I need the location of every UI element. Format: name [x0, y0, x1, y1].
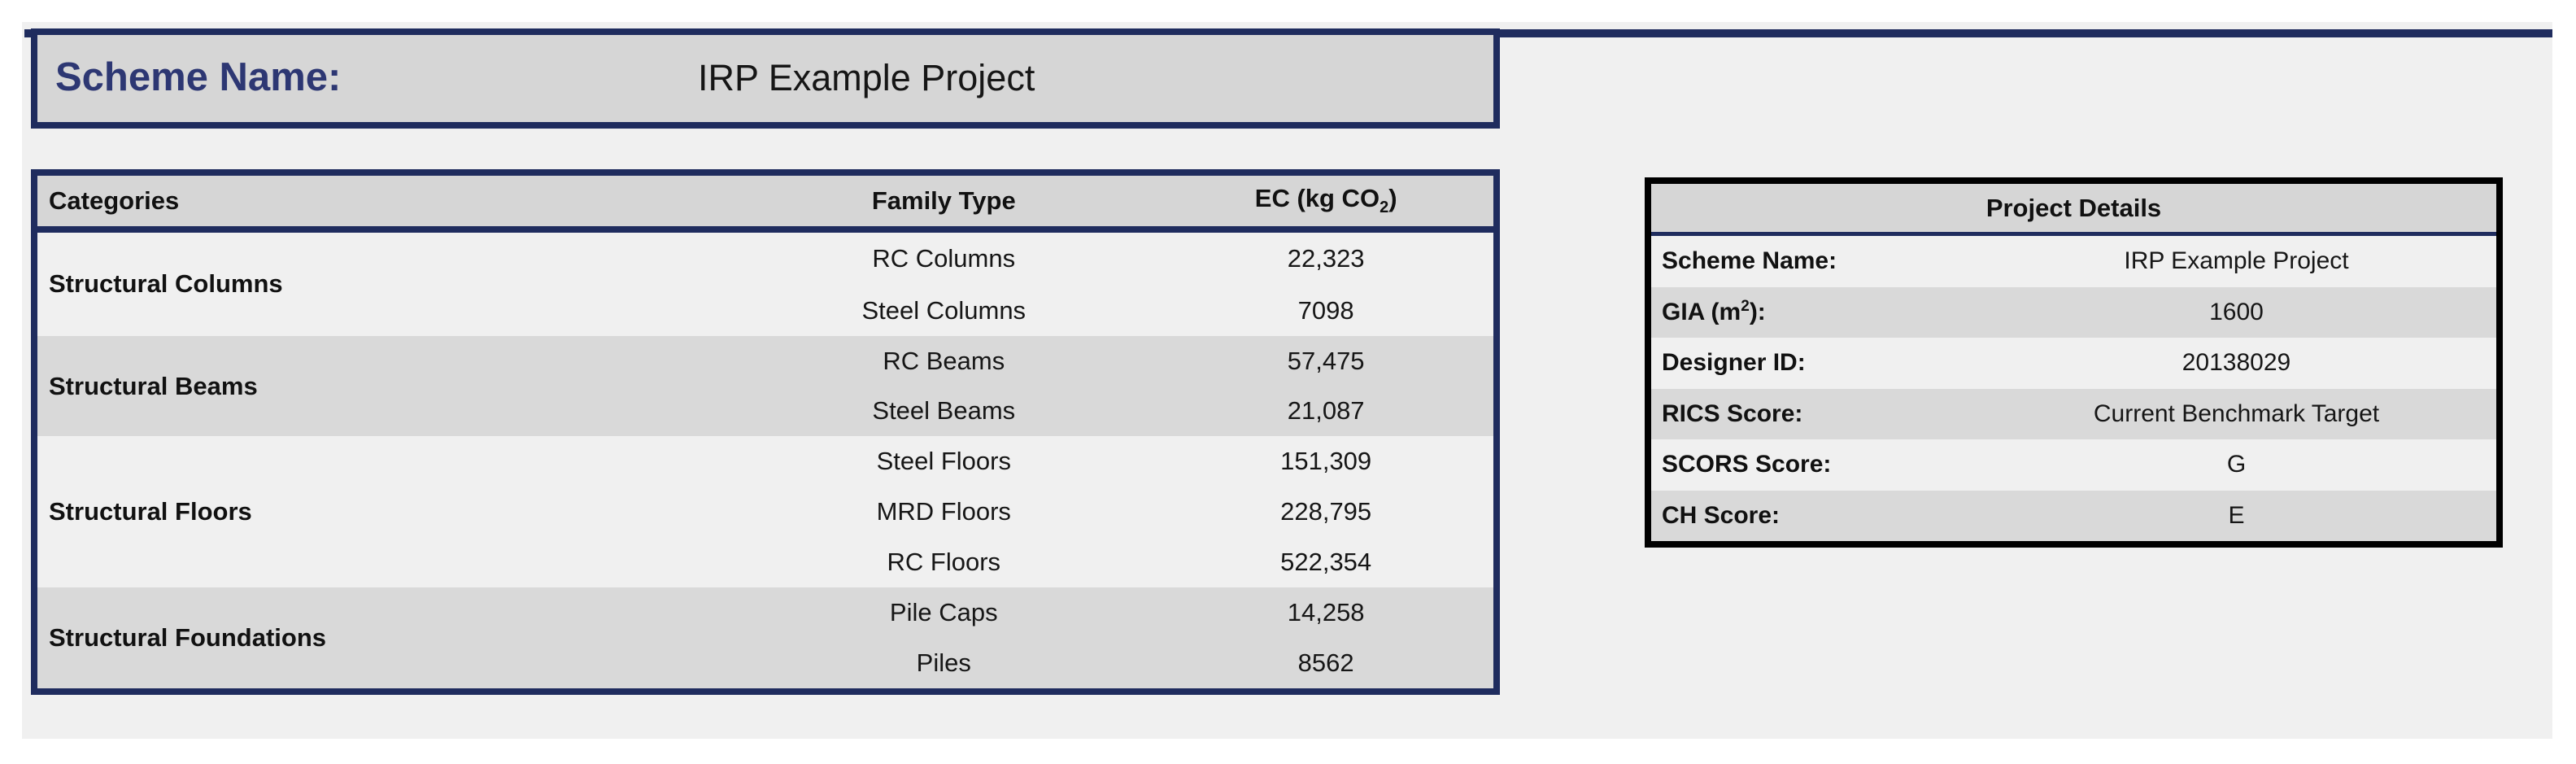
- ec-table-container: Categories Family Type EC (kg CO2) Struc…: [31, 169, 1500, 695]
- ec-value-cell: 21,087: [1158, 386, 1493, 437]
- family-type-cell: Steel Columns: [729, 286, 1158, 336]
- gia-label-suffix: ):: [1750, 299, 1766, 325]
- details-row-ch-score: CH Score: E: [1651, 491, 2496, 542]
- details-label: GIA (m2):: [1651, 298, 1977, 326]
- family-type-cell: MRD Floors: [729, 487, 1158, 537]
- table-row: Structural Beams RC Beams 57,475: [37, 336, 1493, 386]
- details-row-rics-score: RICS Score: Current Benchmark Target: [1651, 389, 2496, 440]
- spreadsheet-report: Scheme Name: IRP Example Project Categor…: [0, 0, 2576, 764]
- details-row-gia: GIA (m2): 1600: [1651, 287, 2496, 338]
- project-details-panel: Project Details Scheme Name: IRP Example…: [1645, 177, 2503, 548]
- details-label: Scheme Name:: [1651, 247, 1977, 275]
- family-type-cell: RC Columns: [729, 229, 1158, 286]
- details-value: E: [1977, 502, 2496, 530]
- project-details-title: Project Details: [1651, 184, 2496, 236]
- family-type-cell: RC Floors: [729, 537, 1158, 587]
- category-cell: Structural Columns: [37, 229, 729, 336]
- family-type-cell: Piles: [729, 638, 1158, 688]
- ec-header-text: EC (kg CO: [1255, 184, 1380, 212]
- column-header-family-type: Family Type: [729, 176, 1158, 229]
- category-cell: Structural Foundations: [37, 587, 729, 688]
- ec-value-cell: 522,354: [1158, 537, 1493, 587]
- details-value: G: [1977, 451, 2496, 478]
- ec-header-subscript: 2: [1380, 199, 1388, 217]
- family-type-cell: RC Beams: [729, 336, 1158, 386]
- family-type-cell: Steel Beams: [729, 386, 1158, 437]
- details-label: RICS Score:: [1651, 400, 1977, 428]
- details-value: 20138029: [1977, 349, 2496, 377]
- family-type-cell: Steel Floors: [729, 436, 1158, 487]
- ec-table-header-row: Categories Family Type EC (kg CO2): [37, 176, 1493, 229]
- ec-header-suffix: ): [1388, 184, 1397, 212]
- ec-value-cell: 228,795: [1158, 487, 1493, 537]
- column-header-categories: Categories: [37, 176, 729, 229]
- table-row: Structural Floors Steel Floors 151,309: [37, 436, 1493, 487]
- scheme-banner-value: IRP Example Project: [698, 56, 1035, 98]
- family-type-cell: Pile Caps: [729, 587, 1158, 638]
- ec-value-cell: 14,258: [1158, 587, 1493, 638]
- details-value: IRP Example Project: [1977, 247, 2496, 275]
- category-cell: Structural Floors: [37, 436, 729, 587]
- details-row-scheme-name: Scheme Name: IRP Example Project: [1651, 236, 2496, 287]
- details-label: Designer ID:: [1651, 349, 1977, 377]
- details-row-scors-score: SCORS Score: G: [1651, 439, 2496, 491]
- details-label: SCORS Score:: [1651, 451, 1977, 478]
- ec-value-cell: 151,309: [1158, 436, 1493, 487]
- ec-table: Categories Family Type EC (kg CO2) Struc…: [37, 176, 1493, 688]
- table-row: Structural Foundations Pile Caps 14,258: [37, 587, 1493, 638]
- ec-value-cell: 22,323: [1158, 229, 1493, 286]
- scheme-banner: Scheme Name: IRP Example Project: [31, 28, 1500, 129]
- table-row: Structural Columns RC Columns 22,323: [37, 229, 1493, 286]
- gia-label-superscript: 2: [1741, 298, 1750, 315]
- ec-value-cell: 7098: [1158, 286, 1493, 336]
- category-cell: Structural Beams: [37, 336, 729, 437]
- gia-label-text: GIA (m: [1662, 299, 1741, 325]
- ec-value-cell: 8562: [1158, 638, 1493, 688]
- ec-value-cell: 57,475: [1158, 336, 1493, 386]
- details-label: CH Score:: [1651, 502, 1977, 530]
- details-row-designer-id: Designer ID: 20138029: [1651, 338, 2496, 389]
- column-header-ec: EC (kg CO2): [1158, 176, 1493, 229]
- details-value: 1600: [1977, 299, 2496, 326]
- scheme-banner-label: Scheme Name:: [55, 54, 341, 99]
- details-value: Current Benchmark Target: [1977, 400, 2496, 428]
